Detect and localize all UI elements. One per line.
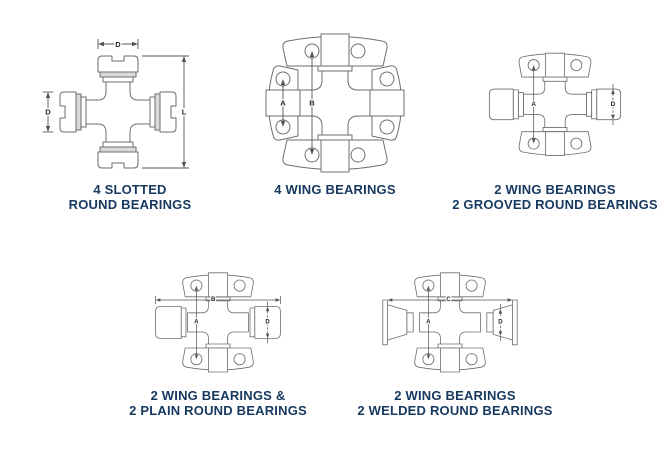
wing-bearing-top (519, 53, 591, 81)
slotted-bearing-left (60, 92, 86, 132)
caption-line-1: 2 WING BEARINGS & (103, 388, 333, 403)
dimension-b: B (309, 51, 315, 155)
caption-line-1: 2 WING BEARINGS (440, 182, 670, 197)
welded-round-bearings-drawing: C A D (370, 260, 530, 392)
caption-line-2: 2 WELDED ROUND BEARINGS (340, 403, 570, 418)
dim-label-a: A (531, 101, 536, 108)
dim-label-a: A (194, 319, 199, 325)
wing-bearing-right (370, 66, 404, 140)
slotted-round-bearings-drawing: D D L (30, 26, 200, 181)
caption-line-1: 2 WING BEARINGS (340, 388, 570, 403)
grooved-round-bearing-right (587, 89, 621, 120)
caption-2-wing-2-plain: 2 WING BEARINGS & 2 PLAIN ROUND BEARINGS (103, 388, 333, 418)
wing-bearing-bottom (415, 344, 486, 372)
diagram-2-wing-2-plain-round-bearings: B A D (138, 260, 298, 397)
dim-label-b: B (211, 297, 216, 303)
caption-line-2: 2 PLAIN ROUND BEARINGS (103, 403, 333, 418)
dim-label-d: D (611, 101, 616, 108)
grooved-round-bearing-left (489, 89, 523, 120)
caption-4-slotted-round-bearings: 4 SLOTTED ROUND BEARINGS (30, 182, 230, 212)
dim-label-a: A (426, 319, 431, 325)
dimension-d-left: D (43, 92, 53, 132)
wing-bearing-top (183, 273, 254, 301)
slotted-bearing-top (98, 56, 138, 82)
caption-line-1: 4 WING BEARINGS (235, 182, 435, 197)
wing-bearing-bottom (183, 344, 254, 372)
diagram-4-slotted-round-bearings: D D L (30, 26, 200, 186)
dim-label-l: L (182, 108, 187, 117)
wing-bearings-drawing: A B (240, 18, 430, 188)
caption-2-wing-2-grooved: 2 WING BEARINGS 2 GROOVED ROUND BEARINGS (440, 182, 670, 212)
diagram-4-wing-bearings: A B (240, 18, 430, 193)
slotted-bearing-bottom (98, 142, 138, 168)
plain-round-bearings-drawing: B A D (138, 260, 298, 392)
wing-bearing-bottom (519, 127, 591, 155)
caption-4-wing-bearings: 4 WING BEARINGS (235, 182, 435, 197)
caption-line-2: ROUND BEARINGS (30, 197, 230, 212)
dim-label-c: C (446, 297, 451, 303)
slotted-bearing-right (150, 92, 176, 132)
plain-round-bearing-left (156, 306, 186, 338)
dim-label-d-left: D (45, 108, 51, 117)
grooved-round-bearings-drawing: A D (474, 36, 636, 177)
cross-body (86, 82, 150, 142)
wing-bearing-bottom (283, 135, 387, 172)
dimension-c: C (388, 297, 513, 303)
caption-line-1: 4 SLOTTED (30, 182, 230, 197)
dim-label-d-top: D (115, 40, 121, 49)
ujoint-bearing-types-page: { "figures": [ { "name": "4 slotted roun… (0, 0, 670, 450)
diagram-2-wing-2-welded-round-bearings: C A D (370, 260, 530, 397)
caption-line-2: 2 GROOVED ROUND BEARINGS (440, 197, 670, 212)
dimension-d-top: D (98, 39, 138, 49)
wing-bearing-top (283, 34, 387, 71)
dim-label-a: A (280, 99, 286, 108)
welded-round-bearing-left (383, 300, 413, 345)
caption-2-wing-2-welded: 2 WING BEARINGS 2 WELDED ROUND BEARINGS (340, 388, 570, 418)
dim-label-d: D (265, 319, 270, 325)
diagram-2-wing-2-grooved-round-bearings: A D (474, 36, 636, 182)
dim-label-b: B (309, 99, 315, 108)
dim-label-d: D (498, 319, 503, 325)
